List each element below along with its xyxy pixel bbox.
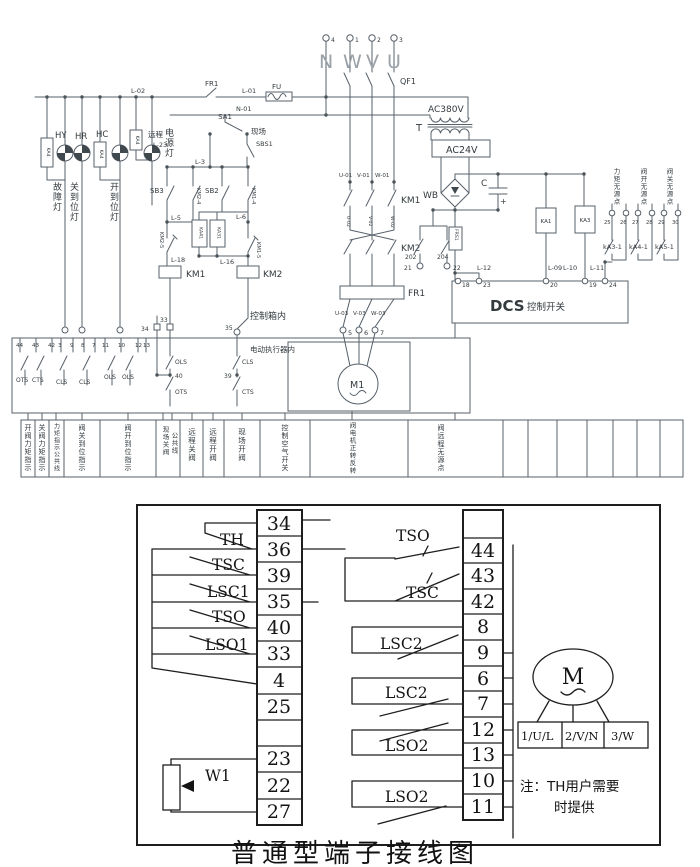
terminal-4-label: 4 (331, 37, 335, 44)
terminal-23-label: 23 (483, 282, 491, 289)
act-num-13: 13 (143, 343, 151, 349)
motor-m1-label: M1 (350, 380, 364, 391)
terminal-7 (372, 327, 378, 333)
lamp-hc (112, 145, 128, 161)
wire-l16-label: L-16 (220, 258, 234, 266)
phase-w-label: W (343, 51, 362, 73)
switch-lsc2b-label: LSC2 (385, 684, 428, 702)
terminal-19-label: 19 (589, 282, 597, 289)
terminal-2 (369, 35, 375, 41)
wire-w03-label: W-03 (371, 311, 386, 317)
left-cell-5: 33 (267, 643, 291, 665)
terminal-25-label: 25 (604, 220, 611, 226)
note-line-2: 时提供 (554, 800, 595, 816)
row-label-7: 远程关阀 (187, 428, 196, 463)
switch-tsc-label: TSC (212, 556, 245, 574)
wire-v02-label: V-02 (367, 216, 373, 226)
pot-arrow-icon (181, 780, 194, 792)
relay-ka4b-label: KA4 (98, 150, 104, 159)
row-label-12: 阀远程无源点 (437, 423, 445, 472)
act-num-42: 42 (48, 343, 55, 349)
coil-km2-label: KM2 (263, 270, 282, 280)
wire-l01-label: L-01 (242, 87, 256, 95)
sa1-local-label: 现场 (251, 127, 266, 136)
terminal-2-label: 2 (377, 37, 381, 44)
act-num-7: 7 (92, 343, 96, 349)
terminal-19 (582, 278, 588, 284)
terminal-3-label: 3 (399, 37, 403, 44)
contact-202-label: 202 (405, 254, 417, 261)
act-sw-ots: OTS (16, 377, 28, 384)
note-line-1: 注：TH用户需要 (520, 778, 619, 795)
motor-terminal-3: 3/W (611, 729, 634, 743)
relay-ka31-label: KA31 (216, 227, 222, 239)
switch-tso-right-label: TSO (396, 527, 430, 545)
chain2-cls: CLS (242, 359, 254, 366)
terminal-34-top (154, 324, 160, 330)
left-cell-10: 22 (267, 775, 291, 797)
actuator-caption: 电动执行器内 (250, 344, 295, 354)
relay-ka41-label: KA41 (198, 227, 204, 239)
coil-km1-label: KM1 (186, 270, 205, 280)
potentiometer-w1 (163, 765, 180, 810)
motor-block: M 1/U/L 2/V/N 3/W 注：TH用户需要 时提供 (503, 545, 648, 838)
right-cell-4: 8 (477, 616, 489, 638)
chain2-cts: CTS (242, 389, 254, 396)
selector-sa1-label: SA1 (218, 113, 232, 121)
terminal-26-label: 26 (620, 220, 627, 226)
contact-km2-4-label: KM2-4 (195, 188, 201, 205)
left-cell-11: 27 (267, 801, 291, 823)
wire-l5-label: L-5 (171, 214, 181, 222)
row-label-0: 开阀力矩指示 (24, 424, 32, 472)
left-cell-4: 40 (267, 617, 291, 639)
top-schematic: 4 1 2 3 N W V U QF1 FR1 L-01 FU L-02 N-0… (12, 35, 683, 477)
wire-l18-label: L-18 (171, 256, 185, 264)
right-terminal-column: 44 43 42 8 9 6 7 12 13 10 11 (463, 510, 503, 820)
terminal-18-label: 18 (462, 282, 470, 289)
ac380-label: AC380V (428, 105, 464, 115)
fr1-aux-label: FR1 (205, 80, 218, 88)
row-label-8: 远程开阀 (208, 428, 217, 463)
contact-ka3-1-label: kA3-1 (603, 243, 622, 251)
chain1-ols: OLS (175, 359, 187, 366)
row-label-2: 力矩指示公共线 (53, 422, 60, 472)
row-label-11: 阀电机正转反转 (348, 421, 356, 475)
motor-terminal-1: 1/U/L (521, 729, 554, 743)
switch-lso2b-label: LSO2 (385, 788, 428, 806)
terminal-5 (340, 327, 346, 333)
control-box-caption: 控制箱内 (250, 310, 286, 322)
wire-l09-label: L-09 (548, 264, 562, 272)
left-cell-3: 35 (267, 591, 291, 613)
left-cell-9: 23 (267, 748, 291, 770)
right-switch-group: TSO TSC LSC2 LSC2 LSO2 LSO2 (345, 527, 463, 824)
act-sw-ols2: OLS (122, 374, 134, 381)
ac24-label: AC24V (446, 145, 478, 156)
function-label-row: 开阀力矩指示 关阀力矩指示 力矩指示公共线 阀关到位指示 阀开到位指示 现场关阀… (21, 411, 683, 477)
row-label-3: 阀关到位指示 (78, 423, 86, 472)
contact-ka4-1-label: kA4-1 (629, 243, 648, 251)
fault-lamp-caption: 故障灯 (51, 181, 62, 212)
terminal-wiring-diagram: 34 36 39 35 40 33 4 25 23 22 27 TH TSC L… (137, 505, 660, 867)
contact-204-label: 204 (437, 254, 449, 261)
act-num-10: 10 (118, 343, 126, 349)
terminal-6-label: 6 (364, 329, 368, 337)
contacts-km1-label: KM1 (401, 196, 420, 206)
passive-contacts-section: 力矩无源点 阀开无源点 阀关无源点 25 26 27 28 29 30 kA3-… (603, 167, 681, 260)
wire-l6-label: L-6 (236, 213, 246, 221)
wire-l11-label: L-11 (590, 264, 604, 272)
wire-n01-label: N-01 (236, 105, 251, 113)
motor-m-label: M (562, 665, 585, 690)
strip-terminal-c (117, 327, 123, 333)
right-cell-7: 7 (477, 693, 489, 715)
row-label-6: 公共线 (170, 432, 178, 455)
right-cell-10: 10 (471, 770, 495, 792)
wire-l02-label: L-02 (131, 87, 145, 95)
phase-u-label: U (387, 51, 401, 73)
row-label-1: 关阀力矩指示 (38, 423, 46, 472)
terminal-33-label: 33 (160, 317, 168, 324)
act-num-11: 11 (102, 343, 110, 349)
wire-l23-label: L-23 (153, 141, 167, 149)
left-cell-2: 39 (267, 565, 291, 587)
lamp-hy-label: HY (55, 131, 67, 141)
terminal-30 (675, 210, 681, 216)
lamp-hr (74, 145, 90, 161)
wire-u01-label: U-01 (339, 173, 353, 179)
act-num-8: 8 (81, 343, 85, 349)
wire-u03-label: U-03 (335, 311, 349, 317)
breaker-qf1-label: QF1 (400, 77, 416, 86)
left-column-right-ticks (302, 520, 345, 602)
open-passive-caption: 阀开无源点 (639, 167, 647, 206)
wire-w02-label: W-02 (389, 216, 395, 228)
thermal-relay-fr1 (340, 286, 404, 299)
button-sb3-label: SB3 (150, 187, 164, 195)
terminal-3 (391, 35, 397, 41)
transformer-t-label: T (415, 123, 423, 134)
act-sw-cls2: CLS (79, 379, 91, 386)
contact-km1-5-label: KM1-5 (255, 242, 261, 258)
terminal-35-top (234, 329, 240, 335)
fuse-fu-label: FU (272, 83, 281, 91)
chain1-ots: OTS (175, 389, 187, 396)
sa1-remote-label: 远程 (148, 130, 163, 139)
terminal-28-label: 28 (646, 220, 653, 226)
terminal-27 (635, 210, 641, 216)
act-sw-ols1: OLS (104, 374, 116, 381)
act-sw-cls1: CLS (56, 379, 68, 386)
left-cell-1: 36 (267, 539, 291, 561)
wire-l10-label: L-10 (563, 264, 577, 272)
left-cell-6: 4 (273, 670, 285, 692)
strip-terminal-a (62, 327, 68, 333)
lamp-hc-label: HC (96, 130, 108, 140)
row-label-5: 现场关阀 (161, 426, 169, 457)
right-cell-6: 6 (477, 668, 489, 690)
diagram-title: 普通型端子接线图 (231, 839, 479, 867)
contact-km1-4-label: KM1-4 (250, 188, 256, 205)
right-cell-11: 11 (471, 796, 495, 818)
terminal-5-label: 5 (348, 329, 352, 337)
motor-zone-border (503, 545, 513, 838)
phase-v-label: V (366, 51, 379, 73)
lamp-hy (57, 145, 73, 161)
wire-v03-label: V-03 (353, 311, 366, 317)
terminal-20 (543, 278, 549, 284)
switch-th-label: TH (220, 531, 244, 549)
right-cell-8: 12 (471, 719, 495, 741)
pot-w1-label: W1 (205, 767, 231, 785)
terminal-20-label: 20 (550, 282, 558, 289)
act-num-43: 43 (32, 343, 40, 349)
switch-tsc-right-label: TSC (406, 584, 439, 602)
torque-passive-caption: 力矩无源点 (612, 167, 620, 206)
motor-terminal-2: 2/V/N (565, 729, 598, 743)
left-cell-7: 25 (267, 696, 291, 718)
row-label-9: 现场开阀 (237, 428, 246, 463)
row-label-10: 控制空气开关 (281, 423, 289, 472)
wiring-diagram-page: 4 1 2 3 N W V U QF1 FR1 L-01 FU L-02 N-0… (0, 0, 700, 867)
control-section: SA1 远程 L-23 现场 SBS1 L-3 SB3 KM2-4 SB2 KM… (141, 113, 286, 338)
terminal-35-label: 35 (225, 325, 233, 332)
act-num-12: 12 (135, 343, 142, 349)
act-sw-cts: CTS (32, 377, 44, 384)
terminal-4 (323, 35, 329, 41)
chain2-39: 39 (224, 373, 232, 380)
terminal-22 (444, 263, 450, 269)
act-num-3: 3 (58, 343, 62, 349)
terminal-1 (347, 35, 353, 41)
relay-ka3-label: KA3 (580, 218, 591, 224)
terminal-30-label: 30 (672, 220, 679, 226)
right-cell-3: 42 (471, 591, 495, 613)
dcs-label: DCS (490, 297, 525, 315)
left-cell-0: 34 (267, 513, 291, 535)
terminal-1-label: 1 (355, 37, 359, 44)
terminal-26 (623, 210, 629, 216)
right-cell-2: 43 (471, 565, 495, 587)
wiring-diagram-svg: 4 1 2 3 N W V U QF1 FR1 L-01 FU L-02 N-0… (0, 0, 700, 867)
contact-ka5-1-label: kA5-1 (655, 243, 674, 251)
button-sb2-label: SB2 (205, 187, 219, 195)
row-label-4: 阀开到位指示 (124, 423, 132, 472)
button-sbs1-label: SBS1 (256, 140, 273, 148)
relay-ka4c-label: KA4 (134, 136, 140, 145)
strip-terminal-b (79, 327, 85, 333)
open-lamp-caption: 开到位灯 (108, 182, 119, 222)
switch-lso1-label: LSO1 (205, 636, 248, 654)
rectifier-wb-label: WB (423, 191, 438, 201)
phase-n-label: N (319, 51, 333, 73)
wire-u02-label: U-02 (345, 216, 351, 227)
contactor-coil-km1 (159, 266, 181, 278)
contactor-coil-km2 (237, 266, 259, 278)
chain1-40: 40 (175, 373, 183, 380)
switch-lsc1-label: LSC1 (207, 583, 250, 601)
closed-lamp-caption: 关到位灯 (68, 181, 79, 222)
relay-ka4a-label: KA4 (45, 148, 51, 157)
capacitor-plus-label: + (500, 197, 507, 206)
thermal-fr1-label: FR1 (408, 289, 425, 299)
right-cell-1: 44 (471, 540, 495, 562)
actuator-section: 44 43 42 3 9 8 7 11 10 12 13 OTS CTS CLS… (12, 333, 470, 413)
motor-legs (537, 701, 609, 722)
switch-tso-label: TSO (212, 608, 246, 626)
left-switch-group: TH TSC LSC1 TSO LSO1 W1 (152, 523, 257, 812)
relay-ka1-label: KA1 (541, 219, 552, 225)
wire-l12-label: L-12 (477, 264, 491, 272)
terminal-28 (649, 210, 655, 216)
terminal-27-label: 27 (632, 220, 639, 226)
terminal-23 (476, 278, 482, 284)
right-cell-5: 9 (477, 642, 489, 664)
rectifier-diode-icon (451, 187, 459, 194)
terminal-22-label: 22 (453, 265, 461, 272)
wire-l3-label: L-3 (195, 158, 205, 166)
act-num-9: 9 (70, 343, 74, 349)
contact-km2-5-label: KM2-5 (158, 232, 164, 248)
left-terminal-column: 34 36 39 35 40 33 4 25 23 22 27 (257, 510, 345, 825)
terminal-24-label: 24 (609, 282, 617, 289)
close-passive-caption: 阀关无源点 (665, 167, 673, 206)
terminal-34-label: 34 (141, 326, 149, 333)
lamp-hr-label: HR (75, 132, 87, 142)
dcs-switch-label: 控制开关 (527, 301, 566, 313)
right-cell-9: 13 (471, 744, 495, 766)
terminal-21-label: 21 (404, 265, 412, 272)
terminal-6 (356, 327, 362, 333)
terminal-25 (609, 210, 615, 216)
terminal-7-label: 7 (380, 329, 384, 337)
main-wires (343, 190, 396, 327)
terminal-29 (661, 210, 667, 216)
terminal-29-label: 29 (658, 220, 665, 226)
frs1-label: FRS1 (453, 229, 459, 241)
terminal-21 (417, 263, 423, 269)
terminal-33-top (167, 324, 173, 330)
terminal-18 (455, 278, 461, 284)
wire-v01-label: V-01 (357, 173, 370, 179)
wire-w01-label: W-01 (375, 173, 390, 179)
switch-lsc2a-label: LSC2 (380, 635, 423, 653)
capacitor-c-label: C (481, 179, 487, 189)
act-num-44: 44 (16, 343, 24, 349)
terminal-24 (602, 278, 608, 284)
switch-lso2a-label: LSO2 (385, 737, 428, 755)
